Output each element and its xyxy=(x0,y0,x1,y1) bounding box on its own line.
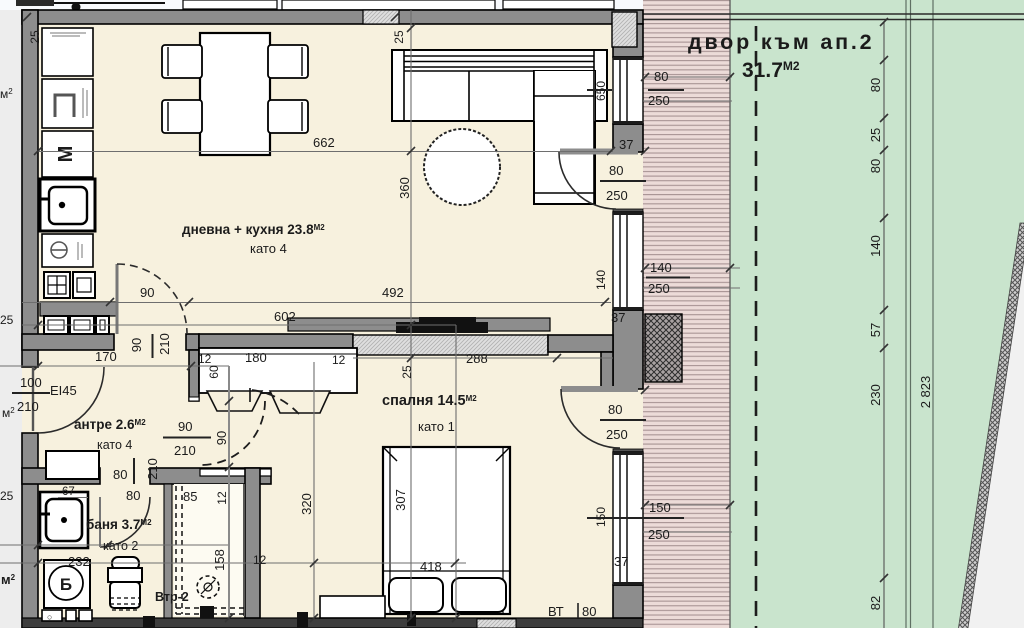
svg-text:158: 158 xyxy=(212,549,227,571)
svg-text:85: 85 xyxy=(183,489,197,504)
svg-text:дневна + кухня 23.8М2: дневна + кухня 23.8М2 xyxy=(182,222,325,237)
svg-text:418: 418 xyxy=(420,559,442,574)
svg-text:25: 25 xyxy=(28,30,42,44)
svg-text:M: M xyxy=(55,146,77,163)
svg-text:80: 80 xyxy=(609,163,623,178)
svg-text:като 4: като 4 xyxy=(250,241,287,256)
svg-text:210: 210 xyxy=(174,443,196,458)
svg-text:като 1: като 1 xyxy=(418,419,455,434)
svg-text:90: 90 xyxy=(178,419,192,434)
svg-text:250: 250 xyxy=(606,188,628,203)
svg-text:EI45: EI45 xyxy=(50,383,77,398)
svg-text:80: 80 xyxy=(868,159,883,173)
svg-text:37: 37 xyxy=(619,137,633,152)
svg-text:80: 80 xyxy=(126,488,140,503)
svg-text:60: 60 xyxy=(207,365,221,379)
svg-text:90: 90 xyxy=(140,285,154,300)
svg-text:602: 602 xyxy=(274,309,296,324)
svg-text:12: 12 xyxy=(198,352,212,366)
svg-text:80: 80 xyxy=(608,402,622,417)
svg-text:230: 230 xyxy=(868,384,883,406)
svg-text:288: 288 xyxy=(466,351,488,366)
svg-text:360: 360 xyxy=(397,177,412,199)
svg-text:100: 100 xyxy=(20,375,42,390)
svg-text:80: 80 xyxy=(654,69,668,84)
svg-text:като 4: като 4 xyxy=(97,438,132,452)
svg-text:140: 140 xyxy=(594,270,608,290)
svg-text:25: 25 xyxy=(400,365,414,379)
svg-text:90: 90 xyxy=(214,431,229,445)
svg-text:170: 170 xyxy=(95,349,117,364)
svg-text:210: 210 xyxy=(17,399,39,414)
svg-text:80: 80 xyxy=(113,467,127,482)
svg-text:650: 650 xyxy=(594,81,608,101)
svg-text:спалня 14.5М2: спалня 14.5М2 xyxy=(382,393,477,409)
svg-text:82: 82 xyxy=(868,596,883,610)
svg-text:ВТ: ВТ xyxy=(548,604,564,619)
svg-text:25: 25 xyxy=(868,128,883,142)
svg-text:232: 232 xyxy=(68,554,90,569)
svg-text:140: 140 xyxy=(868,235,883,257)
svg-text:Втр-2: Втр-2 xyxy=(155,590,189,604)
svg-text:307: 307 xyxy=(393,489,408,511)
svg-text:320: 320 xyxy=(299,493,314,515)
svg-text:37: 37 xyxy=(614,554,628,569)
svg-text:12: 12 xyxy=(332,353,346,367)
svg-text:67: 67 xyxy=(62,486,75,498)
svg-text:80: 80 xyxy=(868,78,883,92)
svg-text:37: 37 xyxy=(611,310,625,325)
svg-text:150: 150 xyxy=(649,500,671,515)
svg-text:210: 210 xyxy=(157,333,172,355)
svg-text:250: 250 xyxy=(648,93,670,108)
svg-text:25: 25 xyxy=(392,30,406,44)
svg-text:25: 25 xyxy=(0,313,14,327)
svg-text:като 2: като 2 xyxy=(103,539,138,553)
svg-text:150: 150 xyxy=(594,507,608,527)
svg-text:662: 662 xyxy=(313,135,335,150)
svg-text:90: 90 xyxy=(129,338,144,352)
svg-text:2 823: 2 823 xyxy=(918,376,933,409)
svg-text:57: 57 xyxy=(868,323,883,337)
svg-text:180: 180 xyxy=(245,350,267,365)
svg-text:12: 12 xyxy=(253,553,267,567)
svg-text:25: 25 xyxy=(0,489,14,503)
svg-text:250: 250 xyxy=(606,427,628,442)
svg-text:210: 210 xyxy=(145,458,160,480)
svg-text:двор към ап.2: двор към ап.2 xyxy=(688,30,874,54)
svg-text:80: 80 xyxy=(582,604,596,619)
svg-text:492: 492 xyxy=(382,285,404,300)
svg-text:12: 12 xyxy=(215,491,229,505)
svg-text:250: 250 xyxy=(648,281,670,296)
svg-text:Б: Б xyxy=(60,575,72,594)
svg-text:250: 250 xyxy=(648,527,670,542)
svg-text:○: ○ xyxy=(47,612,52,622)
svg-text:140: 140 xyxy=(650,260,672,275)
